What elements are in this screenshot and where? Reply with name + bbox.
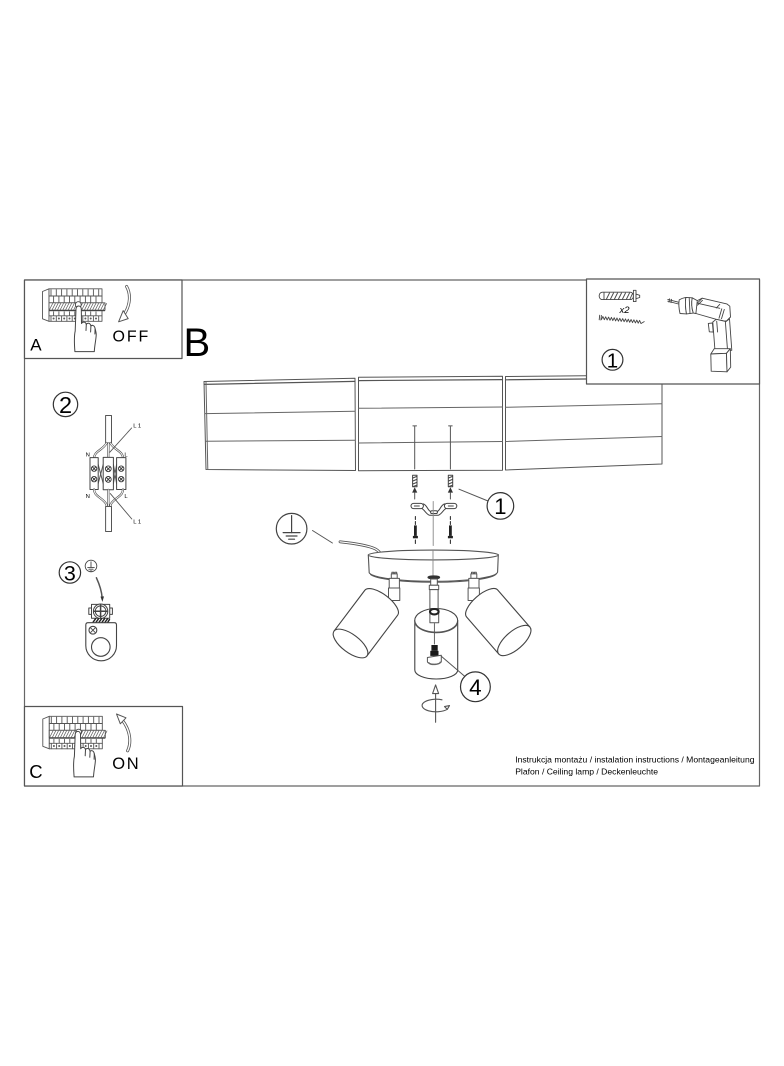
svg-text:1: 1 bbox=[607, 349, 618, 372]
svg-text:2: 2 bbox=[59, 392, 72, 418]
svg-text:ON: ON bbox=[112, 755, 140, 773]
svg-text:3: 3 bbox=[64, 561, 76, 585]
svg-text:1: 1 bbox=[494, 494, 506, 519]
svg-text:x2: x2 bbox=[619, 305, 631, 316]
svg-text:N: N bbox=[86, 453, 90, 459]
svg-text:L 1: L 1 bbox=[133, 520, 141, 526]
svg-text:4: 4 bbox=[469, 675, 482, 700]
svg-text:Instrukcja montażu / instalati: Instrukcja montażu / instalation instruc… bbox=[515, 754, 755, 764]
svg-text:C: C bbox=[29, 761, 42, 782]
svg-text:OFF: OFF bbox=[113, 329, 151, 346]
svg-text:B: B bbox=[184, 321, 211, 365]
svg-text:Plafon / Ceiling lamp / Decken: Plafon / Ceiling lamp / Deckenleuchte bbox=[515, 766, 658, 776]
svg-text:A: A bbox=[30, 336, 42, 355]
svg-text:L 1: L 1 bbox=[133, 423, 141, 429]
svg-text:N: N bbox=[86, 494, 90, 500]
